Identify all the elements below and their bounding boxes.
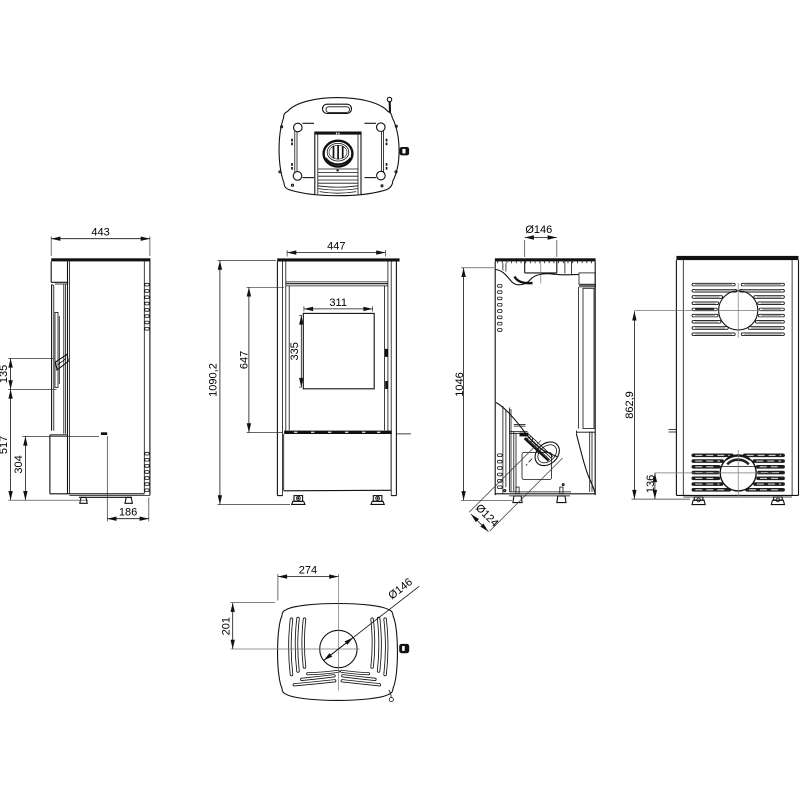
- svg-text:447: 447: [327, 241, 345, 253]
- svg-text:201: 201: [220, 617, 232, 635]
- svg-text:335: 335: [289, 342, 301, 360]
- svg-text:517: 517: [0, 436, 10, 454]
- svg-text:443: 443: [91, 227, 109, 239]
- svg-text:862,9: 862,9: [624, 391, 636, 419]
- svg-text:1090,2: 1090,2: [208, 363, 220, 397]
- svg-text:647: 647: [239, 351, 251, 369]
- svg-text:136: 136: [645, 475, 657, 493]
- svg-text:311: 311: [329, 297, 347, 309]
- svg-text:1046: 1046: [454, 372, 466, 396]
- svg-text:274: 274: [299, 565, 317, 577]
- svg-text:304: 304: [13, 455, 25, 473]
- svg-text:Ø146: Ø146: [525, 224, 552, 236]
- svg-text:186: 186: [119, 507, 137, 519]
- svg-text:135: 135: [0, 365, 10, 383]
